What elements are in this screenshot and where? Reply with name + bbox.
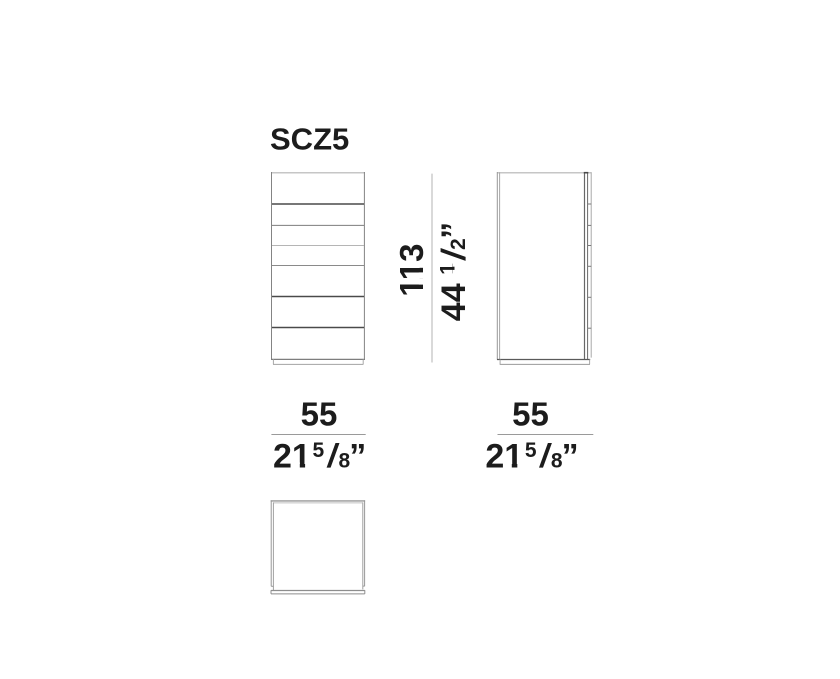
svg-text:5: 5 [313, 439, 325, 462]
svg-text:SCZ5: SCZ5 [270, 122, 349, 157]
svg-text:”: ” [349, 437, 366, 475]
svg-text:2: 2 [447, 238, 470, 250]
svg-text:55: 55 [301, 396, 338, 433]
svg-text:44: 44 [435, 283, 473, 321]
svg-text:5: 5 [525, 439, 537, 462]
svg-text:21: 21 [273, 437, 311, 475]
svg-text:55: 55 [512, 396, 549, 433]
svg-text:”: ” [562, 437, 579, 475]
svg-text:1: 1 [437, 263, 460, 275]
svg-text:”: ” [435, 222, 473, 239]
svg-text:113: 113 [393, 244, 430, 297]
svg-text:21: 21 [485, 437, 523, 475]
